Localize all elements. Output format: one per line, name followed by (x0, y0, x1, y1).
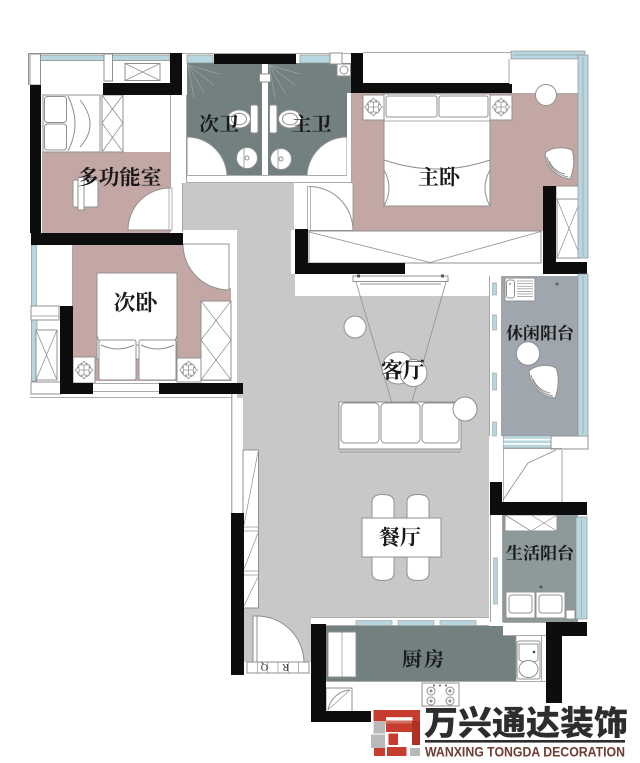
svg-text:Q: Q (260, 661, 268, 672)
svg-text:WANXING TONGDA DECORATION: WANXING TONGDA DECORATION (425, 745, 625, 761)
svg-text:R: R (282, 661, 289, 672)
